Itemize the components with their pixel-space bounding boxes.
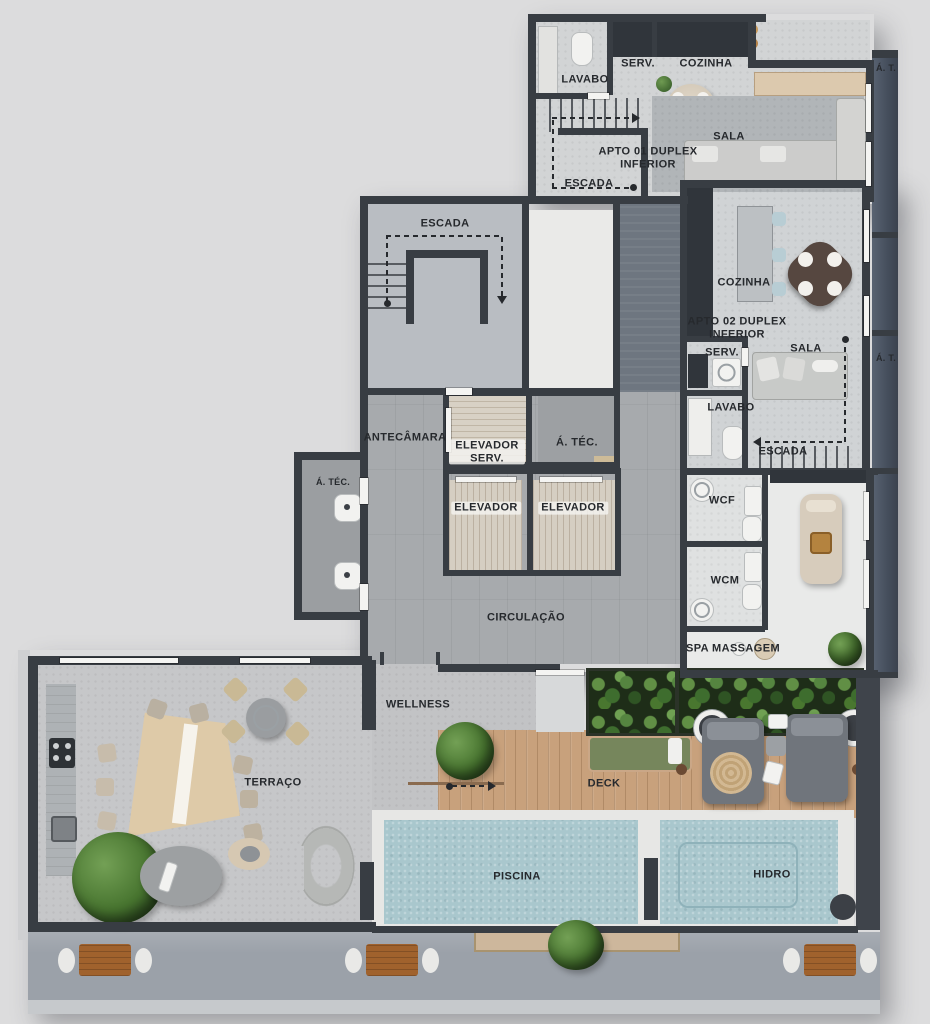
apto02-toilet bbox=[722, 426, 744, 460]
apto01-lavabo-cabinet bbox=[538, 26, 558, 98]
terrace-grill bbox=[49, 738, 75, 768]
terrace-sink bbox=[51, 816, 77, 842]
apto02-plate-1 bbox=[798, 252, 813, 267]
elevator-2-cab bbox=[533, 480, 615, 570]
planter-left bbox=[586, 668, 678, 736]
core-stair-treads bbox=[368, 258, 408, 318]
room-label-deck: DECK bbox=[588, 778, 621, 791]
wc-wall-right bbox=[762, 472, 768, 630]
atec-core-wall-top bbox=[532, 390, 620, 396]
terrace-grill-knob-1 bbox=[53, 743, 59, 749]
apto01-lavabo-door bbox=[588, 93, 609, 99]
terrace-wall-left bbox=[28, 656, 38, 932]
deck-knob-1 bbox=[676, 764, 687, 775]
deck-path-arrow bbox=[488, 781, 501, 791]
glass-door-frame bbox=[536, 670, 584, 675]
spa-counter bbox=[770, 470, 866, 483]
apto01-chaise bbox=[836, 98, 866, 188]
wcf-vanity bbox=[744, 486, 762, 516]
tech-strip-right bbox=[872, 56, 898, 678]
core-stair-wall-right bbox=[480, 250, 488, 324]
atec-left-fixture-2-core bbox=[344, 572, 350, 578]
bottom-ledge bbox=[28, 932, 880, 1004]
apto01-kitchen-counter bbox=[610, 20, 750, 57]
terrace-chair-6 bbox=[232, 754, 253, 775]
tech-strip-cap-top bbox=[872, 50, 898, 58]
tech-strip-sep-3 bbox=[872, 468, 898, 474]
room-label-apto02-lavabo: LAVABO bbox=[707, 402, 754, 415]
atec-core-floor bbox=[538, 396, 614, 462]
glass-door-panel bbox=[536, 674, 584, 732]
apto02-window-2 bbox=[864, 296, 869, 336]
elevator-1-door bbox=[456, 477, 516, 482]
apto01-wall-lavabo-bottom bbox=[528, 93, 590, 99]
core-stair-path-right bbox=[501, 236, 503, 296]
deck-straw-mat bbox=[710, 752, 752, 794]
apto02-cushion-2 bbox=[782, 356, 806, 381]
room-label-apto01-unit: APTO 01 DUPLEX INFERIOR bbox=[587, 145, 709, 170]
room-label-apto02-unit: APTO 02 DUPLEX INFERIOR bbox=[675, 315, 799, 340]
apto01-wall-sala-top bbox=[752, 60, 874, 68]
core-stair-path-left bbox=[386, 236, 388, 302]
deck-lounger-1-pillow bbox=[707, 722, 759, 740]
ledge-pot-1b bbox=[135, 948, 152, 973]
elevators-wall-bottom bbox=[443, 570, 621, 576]
apto01-wall-serv-divider bbox=[652, 21, 657, 57]
terrace-kidney-table-item bbox=[240, 846, 260, 862]
room-label-atec-core: Á. TÉC. bbox=[556, 437, 598, 450]
room-label-terraco: TERRAÇO bbox=[244, 777, 301, 790]
atec-left-fixture-1-core bbox=[344, 504, 350, 510]
wcm-shower-icon bbox=[690, 598, 714, 622]
room-label-at-top: Á. T. bbox=[876, 63, 896, 73]
room-label-apto02-cozinha: COZINHA bbox=[718, 277, 771, 290]
apto01-plant-small bbox=[656, 76, 672, 92]
terrace-oval-table bbox=[140, 846, 222, 906]
bottom-ledge-edge bbox=[28, 1000, 880, 1014]
ledge-pot-3a bbox=[783, 948, 800, 973]
apto02-stool-2 bbox=[772, 248, 786, 262]
terrace-chair-1 bbox=[97, 743, 117, 763]
room-label-wcm: WCM bbox=[711, 575, 740, 588]
atec-left-wall-bottom bbox=[294, 612, 368, 620]
elevators-wall-right bbox=[615, 468, 621, 576]
ledge-pot-3b bbox=[860, 948, 877, 973]
core-stair-arrow bbox=[497, 296, 507, 309]
atec-core-wall-right bbox=[614, 390, 620, 468]
apto01-stair-treads bbox=[540, 98, 644, 132]
apto02-kitchen-counter bbox=[687, 188, 713, 336]
core-door-left-2 bbox=[360, 584, 368, 610]
apto01-stair-rail-h bbox=[558, 128, 648, 135]
spa-towel bbox=[810, 532, 832, 554]
elevator-serv-wall-right bbox=[526, 390, 532, 468]
elevators-wall-mid bbox=[527, 468, 533, 576]
apto02-stair-dot bbox=[842, 336, 849, 343]
apto01-window-1 bbox=[866, 84, 871, 132]
atec-left-wall-left bbox=[294, 452, 302, 620]
terrace-wellness-wall bbox=[362, 660, 376, 730]
room-label-spa: SPA MASSAGEM bbox=[686, 643, 780, 656]
apto01-toilet bbox=[571, 32, 593, 66]
spa-wall-bottom bbox=[680, 670, 878, 678]
deck-right-wall bbox=[856, 678, 880, 930]
spa-window-1 bbox=[864, 492, 869, 540]
room-label-hidro: HIDRO bbox=[753, 869, 790, 882]
core-white-room-floor bbox=[529, 210, 614, 392]
pool-wall-bottom bbox=[372, 926, 858, 933]
apto01-cushion-2 bbox=[760, 146, 786, 162]
apto01-sideboard bbox=[754, 72, 866, 96]
apto01-stair-path-v bbox=[552, 118, 554, 188]
apto01-window-2 bbox=[866, 142, 871, 186]
core-stair-wall-top bbox=[406, 250, 488, 258]
apto01-stair-path-top bbox=[552, 117, 632, 119]
room-label-wcf: WCF bbox=[709, 495, 735, 508]
wcf-toilet bbox=[742, 516, 762, 542]
spa-plant bbox=[828, 632, 862, 666]
elevator-1-cab bbox=[449, 480, 522, 570]
room-label-apto01-sala: SALA bbox=[713, 131, 745, 144]
ledge-pot-2b bbox=[422, 948, 439, 973]
room-label-apto01-lavabo: LAVABO bbox=[561, 74, 608, 87]
terrace-window-1 bbox=[60, 658, 178, 663]
ledge-planter-3 bbox=[804, 944, 856, 976]
core-stair-door bbox=[446, 388, 472, 395]
room-label-wellness: WELLNESS bbox=[386, 699, 450, 712]
apto02-serv-door bbox=[742, 348, 748, 366]
terrace-chair-3 bbox=[97, 811, 118, 832]
core-shaft-strip bbox=[620, 204, 686, 392]
spa-window-2 bbox=[864, 560, 869, 608]
wc-wall-divider bbox=[687, 541, 765, 547]
apto02-plate-3 bbox=[798, 281, 813, 296]
pool-left-notch bbox=[360, 862, 374, 920]
wellness-post-1 bbox=[380, 652, 384, 665]
apto02-window-1 bbox=[864, 210, 869, 262]
apto01-wall-left bbox=[528, 14, 536, 202]
room-label-apto02-escada: ESCADA bbox=[759, 446, 808, 459]
terrace-grill-knob-2 bbox=[65, 743, 71, 749]
apto01-wall-top bbox=[528, 14, 766, 22]
room-label-antecamara: ANTECÂMARA bbox=[364, 432, 447, 445]
apto02-cushion-3 bbox=[812, 360, 838, 372]
apto02-plate-2 bbox=[827, 252, 842, 267]
apto02-cushion-1 bbox=[756, 356, 780, 382]
terrace-grill-knob-4 bbox=[65, 755, 71, 761]
apto02-stair-path-h bbox=[756, 441, 846, 443]
tech-strip-sep-1 bbox=[872, 232, 898, 238]
ledge-pot-1a bbox=[58, 948, 75, 973]
room-label-core-escada: ESCADA bbox=[421, 218, 470, 231]
terrace-round-table bbox=[246, 698, 286, 738]
wcm-wall-bottom bbox=[687, 626, 765, 632]
room-label-apto02-serv: SERV. bbox=[705, 347, 739, 360]
elevator-2-door bbox=[540, 477, 602, 482]
apto02-stair-path-v bbox=[844, 344, 846, 442]
atec-left-wall-top bbox=[294, 452, 368, 460]
floor-plan-canvas: LAVABO SERV. COZINHA SALA APTO 01 DUPLEX… bbox=[0, 0, 930, 1024]
deck-side-table-1 bbox=[768, 714, 788, 729]
deck-side-table-2 bbox=[766, 736, 786, 756]
spa-massage-pillow bbox=[806, 500, 836, 512]
wcm-vanity bbox=[744, 552, 762, 582]
room-label-atec-left: Á. TÉC. bbox=[316, 477, 350, 487]
terrace-counter bbox=[46, 684, 76, 876]
room-label-circulacao: CIRCULAÇÃO bbox=[487, 612, 565, 625]
tech-strip-sep-2 bbox=[872, 330, 898, 336]
room-label-piscina: PISCINA bbox=[493, 871, 540, 884]
apto02-plate-4 bbox=[827, 281, 842, 296]
room-label-at-right: Á. T. bbox=[876, 353, 896, 363]
hidro-cover-circle bbox=[830, 894, 856, 920]
deck-lounger-2-pillow bbox=[791, 718, 843, 736]
room-label-elevador-2: ELEVADOR bbox=[538, 502, 608, 515]
room-label-apto01-serv: SERV. bbox=[621, 58, 655, 71]
deck-path-line bbox=[452, 785, 488, 787]
ledge-pot-2a bbox=[345, 948, 362, 973]
terrace-grill-knob-3 bbox=[53, 755, 59, 761]
apto02-stool-1 bbox=[772, 212, 786, 226]
terrace-window-2 bbox=[240, 658, 310, 663]
core-wall-whiteroom-right bbox=[613, 204, 620, 395]
ledge-planter-1 bbox=[79, 944, 131, 976]
ledge-planter-2 bbox=[366, 944, 418, 976]
apto02-wall-top bbox=[680, 180, 874, 188]
room-label-apto02-sala: SALA bbox=[790, 343, 822, 356]
terrace-chair-7 bbox=[240, 790, 258, 808]
deck-daybed-pillow bbox=[668, 738, 682, 764]
pool-planter-plant bbox=[548, 920, 604, 970]
core-stair-path-top bbox=[386, 235, 502, 237]
terrace-curved-sofa-opening bbox=[278, 846, 304, 890]
core-door-left-1 bbox=[360, 478, 368, 504]
core-wall-stair-right bbox=[522, 204, 529, 395]
deck-plant bbox=[436, 722, 494, 780]
room-label-elevador-1: ELEVADOR bbox=[451, 502, 521, 515]
pool-divider-wall bbox=[644, 858, 658, 920]
terrace-wall-bottom bbox=[28, 922, 376, 932]
core-stair-wall-left bbox=[406, 250, 414, 324]
apto02-washing-machine-icon bbox=[712, 358, 741, 387]
wcm-toilet bbox=[742, 584, 762, 610]
apto02-stool-3 bbox=[772, 282, 786, 296]
apto01-stair-arrow bbox=[632, 113, 645, 123]
wellness-post-2 bbox=[436, 652, 440, 665]
apto02-wall-serv-lavabo bbox=[687, 390, 745, 396]
room-label-elevador-serv: ELEVADOR SERV. bbox=[449, 439, 525, 464]
terrace-chair-2 bbox=[96, 778, 114, 796]
wellness-floor-lower bbox=[372, 732, 438, 816]
core-wall-top bbox=[360, 196, 688, 204]
elevators-wall-left bbox=[443, 468, 449, 576]
room-label-apto01-escada: ESCADA bbox=[565, 178, 614, 191]
apto01-stair-dot bbox=[630, 184, 637, 191]
room-label-apto01-cozinha: COZINHA bbox=[680, 58, 733, 71]
tech-strip-cap-bottom bbox=[872, 672, 898, 678]
